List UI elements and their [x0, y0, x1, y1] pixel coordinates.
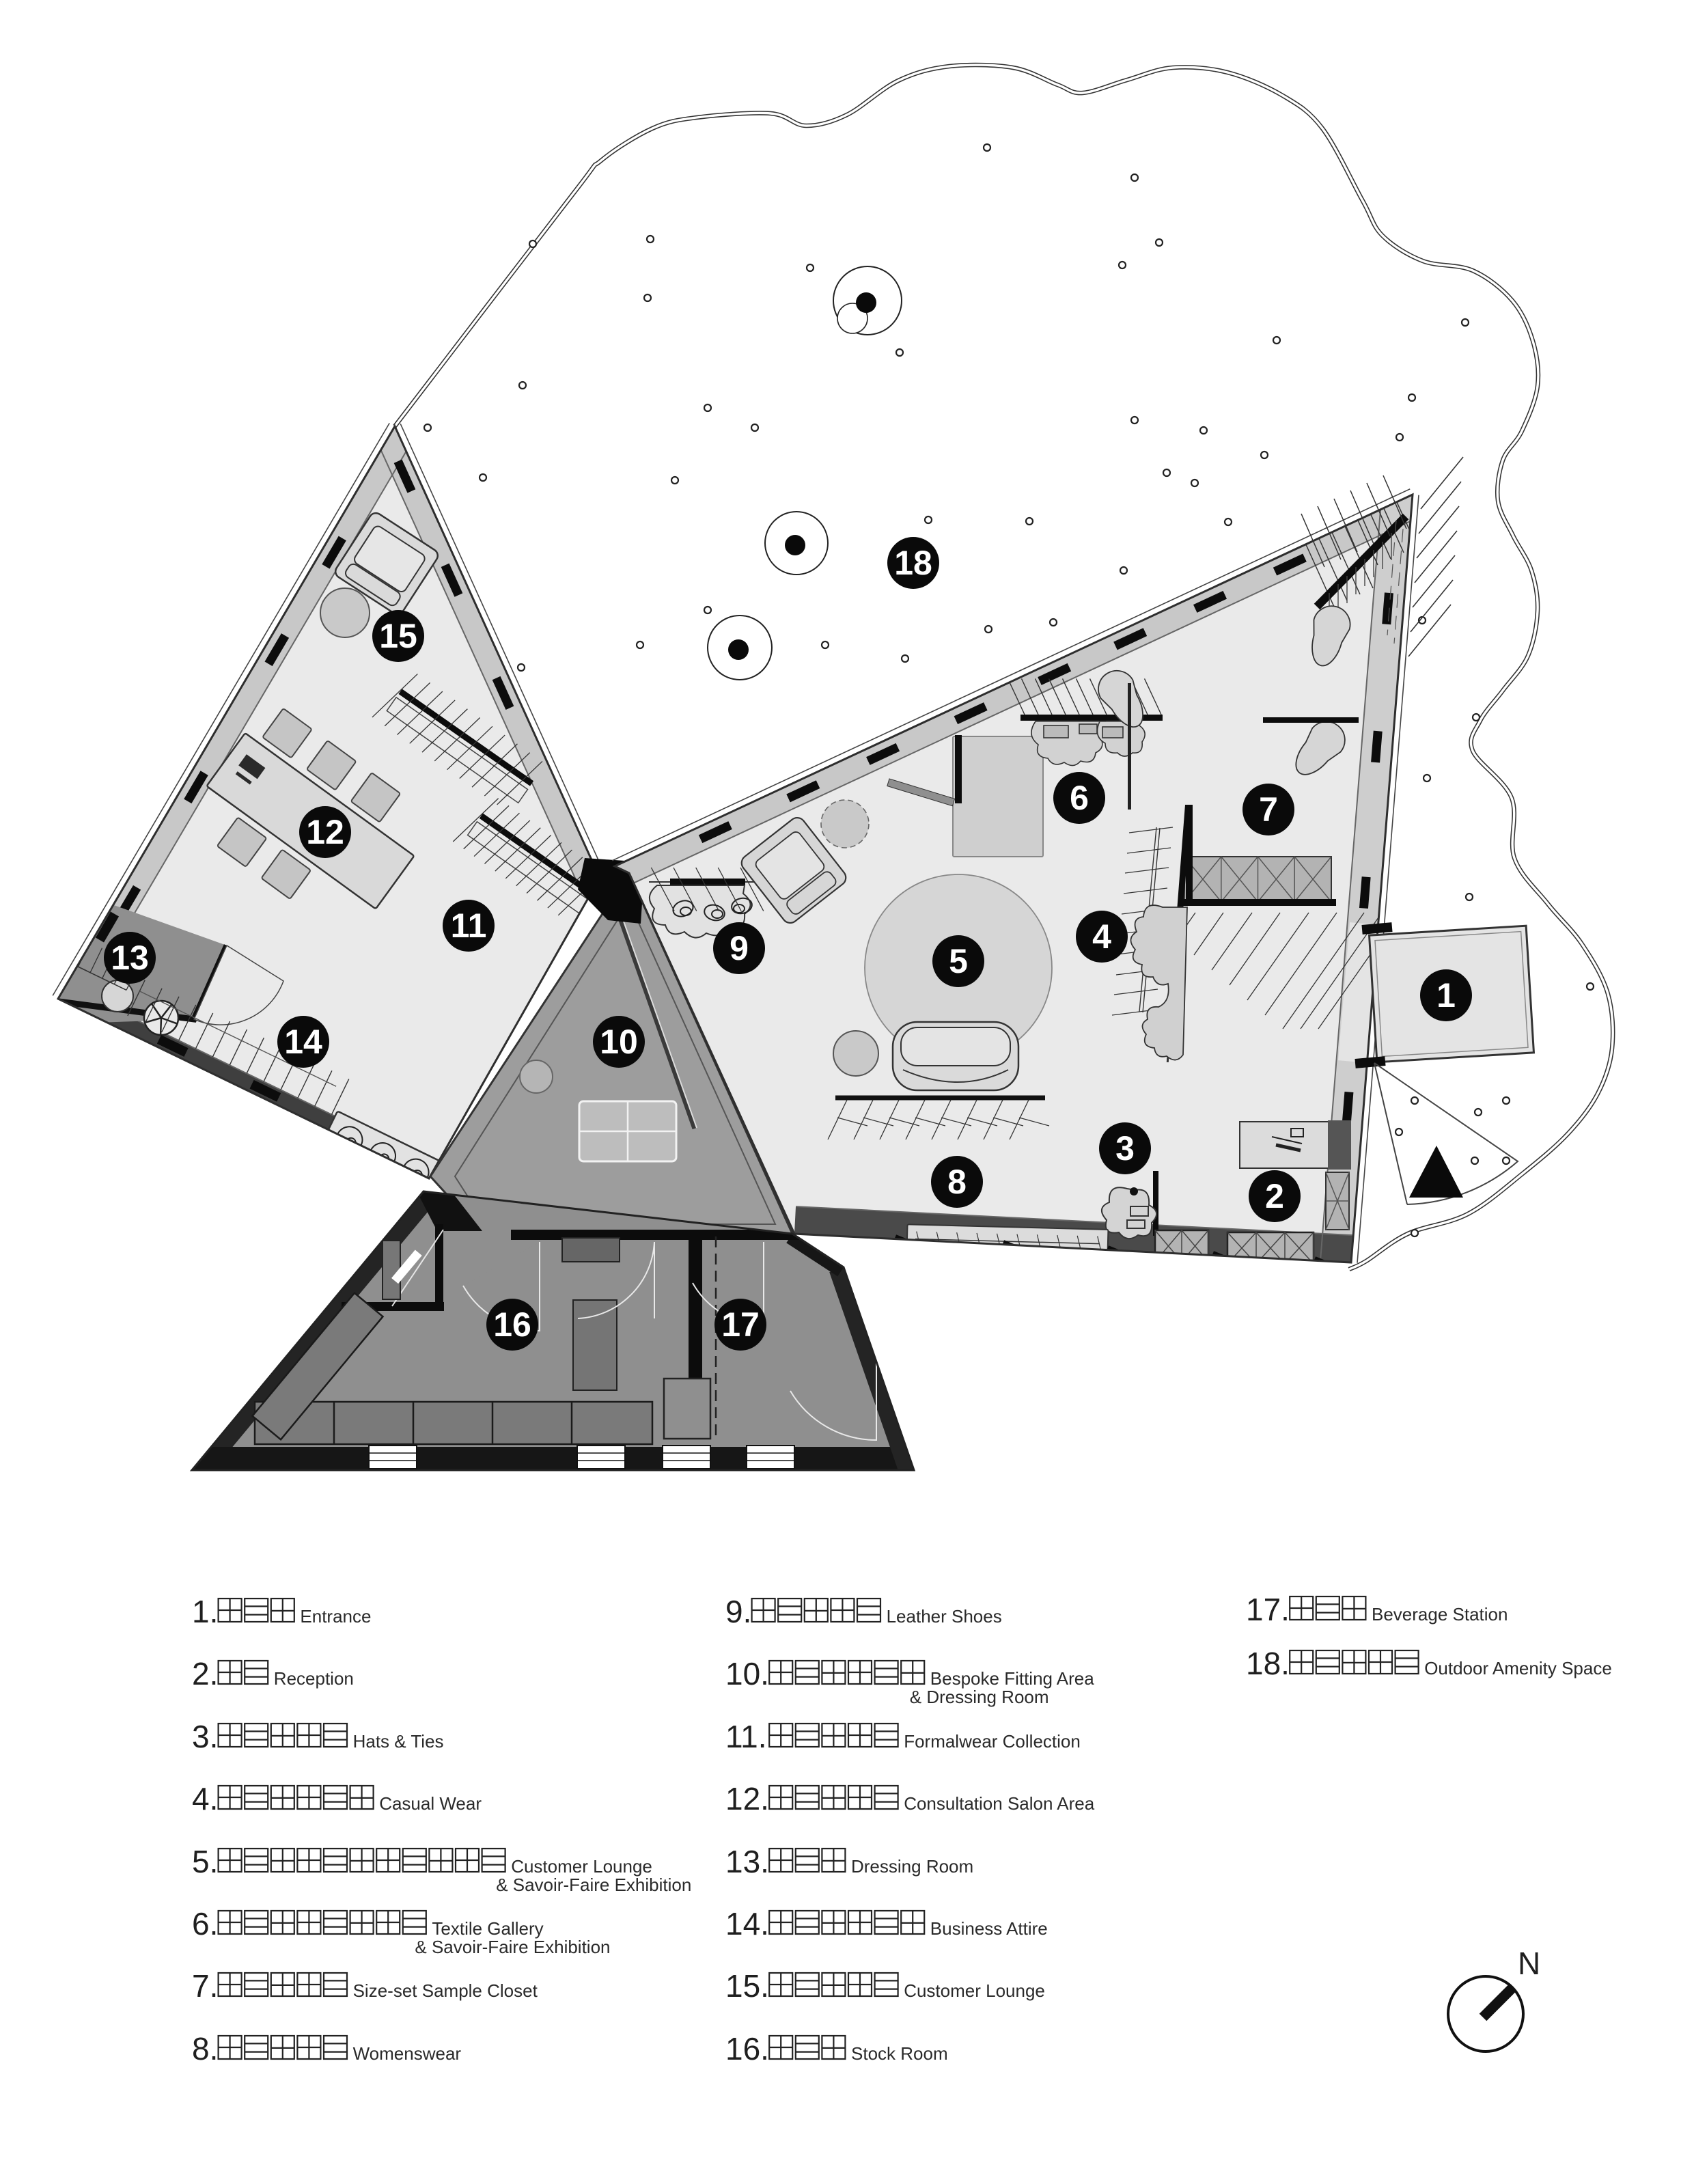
svg-text:6.: 6. [192, 1906, 218, 1941]
svg-text:3.: 3. [192, 1719, 218, 1754]
svg-text:2.: 2. [192, 1656, 218, 1691]
svg-text:14: 14 [284, 1023, 322, 1061]
svg-text:1: 1 [1436, 976, 1456, 1014]
svg-text:5.: 5. [192, 1844, 218, 1879]
svg-text:2: 2 [1265, 1177, 1284, 1215]
svg-text:Bespoke Fitting Area: Bespoke Fitting Area [930, 1668, 1094, 1689]
svg-text:9.: 9. [725, 1594, 751, 1629]
svg-text:N: N [1518, 1946, 1540, 1981]
svg-text:Stock Room: Stock Room [851, 2043, 948, 2064]
svg-text:9: 9 [730, 929, 749, 967]
svg-text:Leather Shoes: Leather Shoes [887, 1606, 1002, 1627]
svg-text:& Savoir-Faire Exhibition: & Savoir-Faire Exhibition [415, 1937, 610, 1957]
svg-text:Customer Lounge: Customer Lounge [511, 1856, 652, 1877]
svg-text:16.: 16. [725, 2031, 769, 2066]
svg-text:10.: 10. [725, 1656, 769, 1691]
svg-text:11: 11 [451, 907, 487, 945]
svg-text:3: 3 [1115, 1129, 1135, 1167]
svg-text:Casual Wear: Casual Wear [379, 1793, 482, 1814]
svg-text:12: 12 [306, 813, 344, 851]
svg-text:17.: 17. [1246, 1592, 1290, 1627]
svg-text:10: 10 [600, 1023, 638, 1061]
svg-text:15.: 15. [725, 1968, 769, 2004]
svg-text:13: 13 [111, 939, 149, 977]
svg-text:Reception: Reception [274, 1668, 354, 1689]
svg-text:5: 5 [949, 942, 968, 980]
svg-text:& Savoir-Faire Exhibition: & Savoir-Faire Exhibition [496, 1875, 691, 1895]
svg-text:17: 17 [721, 1305, 760, 1344]
svg-text:14.: 14. [725, 1906, 769, 1941]
svg-text:11.: 11. [725, 1719, 767, 1754]
svg-text:6: 6 [1070, 779, 1089, 817]
svg-text:7: 7 [1259, 790, 1278, 829]
svg-text:Textile Gallery: Textile Gallery [432, 1918, 543, 1939]
svg-text:15: 15 [379, 617, 417, 655]
svg-text:8: 8 [947, 1163, 967, 1201]
svg-text:Entrance: Entrance [300, 1606, 371, 1627]
svg-text:8.: 8. [192, 2031, 218, 2066]
svg-text:Consultation Salon Area: Consultation Salon Area [904, 1793, 1095, 1814]
svg-text:Dressing Room: Dressing Room [851, 1856, 973, 1877]
svg-text:Formalwear Collection: Formalwear Collection [904, 1731, 1081, 1752]
svg-text:1.: 1. [192, 1594, 218, 1629]
svg-text:& Dressing Room: & Dressing Room [910, 1687, 1049, 1707]
svg-text:12.: 12. [725, 1781, 769, 1816]
svg-text:Beverage Station: Beverage Station [1372, 1604, 1508, 1625]
svg-text:Outdoor Amenity Space: Outdoor Amenity Space [1424, 1658, 1612, 1678]
svg-text:Womenswear: Womenswear [353, 2043, 462, 2064]
svg-text:Size-set Sample Closet: Size-set Sample Closet [353, 1980, 538, 2001]
svg-text:16: 16 [493, 1305, 531, 1344]
svg-text:18: 18 [894, 544, 932, 582]
svg-text:18.: 18. [1246, 1646, 1290, 1681]
svg-text:4.: 4. [192, 1781, 218, 1816]
svg-text:13.: 13. [725, 1844, 769, 1879]
svg-text:Hats & Ties: Hats & Ties [353, 1731, 444, 1752]
svg-text:Customer Lounge: Customer Lounge [904, 1980, 1045, 2001]
svg-text:Business Attire: Business Attire [930, 1918, 1048, 1939]
svg-text:7.: 7. [192, 1968, 218, 2004]
svg-text:4: 4 [1092, 917, 1111, 956]
